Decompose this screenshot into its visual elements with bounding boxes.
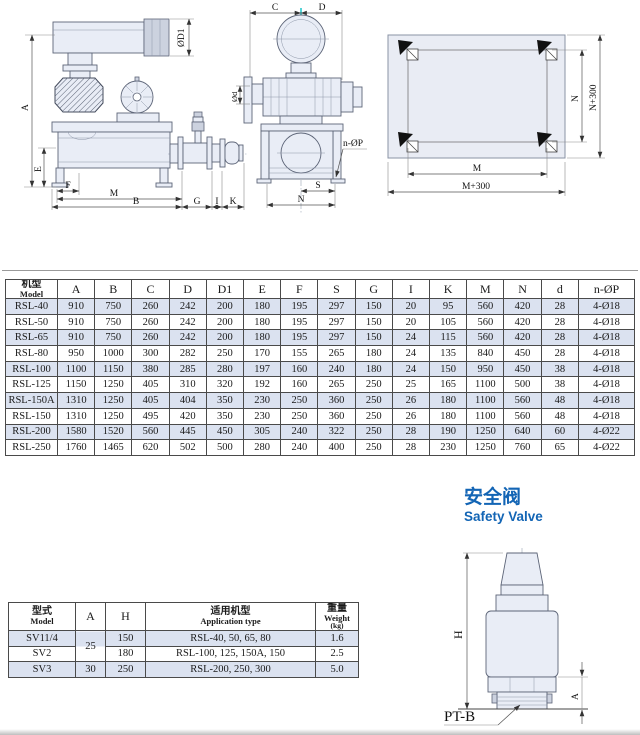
value-cell: 350 [206,393,243,409]
model-cell: RSL-40 [6,299,58,315]
value-cell: 4-Ø22 [579,440,635,456]
table-row: RSL-659107502602422001801952971502411556… [6,330,635,346]
value-cell: 500 [206,440,243,456]
value-cell: 450 [504,346,541,362]
value-cell: 1520 [95,424,132,440]
value-cell: 297 [318,314,355,330]
value-cell: 200 [206,299,243,315]
value-cell: 38 [541,361,578,377]
value-cell: 320 [206,377,243,393]
value-cell: 420 [504,330,541,346]
model-cell: RSL-150A [6,393,58,409]
value-cell: 28 [392,440,429,456]
value-cell: 1100 [467,408,504,424]
value-cell: 155 [281,346,318,362]
value-cell: 1150 [95,361,132,377]
model-cell: RSL-200 [6,424,58,440]
value-cell: 445 [169,424,206,440]
dim-label-D: D [319,3,326,13]
pipe-safety-valve [192,122,204,131]
dim-label-I: I [215,197,218,207]
value-cell: 4-Ø18 [579,377,635,393]
value-cell: 95 [430,299,467,315]
column-header: 重量Weight(kg) [316,603,359,631]
model-cell: RSL-80 [6,346,58,362]
value-cell: 150 [430,361,467,377]
table-row: RSL-809501000300282250170155265180241358… [6,346,635,362]
value-cell: 250 [206,346,243,362]
table-row: RSL-250176014656205025002802404002502823… [6,440,635,456]
value-cell: 24 [392,330,429,346]
value-cell: 26 [392,408,429,424]
value-cell: 322 [318,424,355,440]
value-cell: 242 [169,314,206,330]
safety-valve-title-zh: 安全阀 [464,488,543,507]
dim-label-S: S [315,181,320,191]
dim-label-D1: ØD1 [177,28,187,47]
value-cell: 265 [318,377,355,393]
model-cell: SV2 [9,646,76,662]
value-cell: 260 [132,299,169,315]
valve-cap [501,553,543,585]
value-cell: 180 [430,408,467,424]
table-row: RSL-150A13101250405404350230250360250261… [6,393,635,409]
value-cell: 1760 [58,440,95,456]
dim-label-E: E [34,166,44,172]
valve-thread [497,692,547,709]
value-cell: 1000 [95,346,132,362]
dim-label-G: G [194,197,201,207]
dim-label-plan-N: N [571,95,581,102]
dim-label-valve-H: H [451,630,465,639]
value-cell: 28 [541,314,578,330]
value-cell: 240 [318,361,355,377]
value-cell: 297 [318,330,355,346]
value-cell: 150 [106,631,146,647]
value-cell: 1150 [58,377,95,393]
column-header: A [76,603,106,631]
discharge-pipe [183,143,207,163]
value-cell: 195 [281,314,318,330]
application-cell: RSL-100, 125, 150A, 150 [146,646,316,662]
value-cell: 750 [95,330,132,346]
table-header-row: 型式ModelAH适用机型Application type重量Weight(kg… [9,603,359,631]
value-cell: 250 [355,408,392,424]
weight-cell: 2.5 [316,646,359,662]
value-cell: 1250 [467,440,504,456]
value-cell: 305 [244,424,281,440]
value-cell: 28 [392,424,429,440]
dim-label-d: Ød [232,91,239,102]
model-cell: SV3 [9,662,76,678]
value-cell: 180 [430,393,467,409]
value-cell: 1250 [95,393,132,409]
value-cell: 260 [132,314,169,330]
model-cell: RSL-150 [6,408,58,424]
value-cell: 405 [132,377,169,393]
weight-cell: 5.0 [316,662,359,678]
model-cell: RSL-100 [6,361,58,377]
value-cell: 195 [281,299,318,315]
application-cell: RSL-40, 50, 65, 80 [146,631,316,647]
valve-body [486,611,558,677]
value-cell: 60 [541,424,578,440]
value-cell: 1310 [58,393,95,409]
value-cell: 180 [244,299,281,315]
silencer-body [53,22,144,53]
value-cell: 640 [504,424,541,440]
value-cell: 250 [355,393,392,409]
value-cell: 26 [392,393,429,409]
column-header: 型式Model [9,603,76,631]
value-cell: 450 [206,424,243,440]
column-header: B [95,280,132,299]
value-cell: 180 [106,646,146,662]
value-cell: 1250 [95,408,132,424]
model-cell: RSL-125 [6,377,58,393]
value-cell: 165 [430,377,467,393]
dim-label-N: N [298,195,305,205]
dimensions-table: 机型ModelABCDD1EFSGIKMNdn-ØP RSL-409107502… [5,279,635,456]
dim-label-B: B [133,197,139,207]
value-cell: 192 [244,377,281,393]
table-row: RSL-409107502602422001801952971502095560… [6,299,635,315]
column-header: S [318,280,355,299]
value-cell: 950 [467,361,504,377]
value-cell: 760 [504,440,541,456]
value-cell: 230 [244,408,281,424]
value-cell: 190 [430,424,467,440]
value-cell: 400 [318,440,355,456]
safety-valve-title-en: Safety Valve [464,510,543,524]
value-cell: 150 [355,330,392,346]
column-header: 机型Model [6,280,58,299]
column-header: H [106,603,146,631]
value-cell: 404 [169,393,206,409]
section-divider [2,270,638,271]
dim-label-M: M [110,189,119,199]
value-cell: 560 [504,393,541,409]
value-cell: 950 [58,346,95,362]
value-cell: 28 [541,346,578,362]
column-header: C [132,280,169,299]
dim-label-plan-M300: M+300 [462,182,490,192]
value-cell: 265 [318,346,355,362]
value-cell: 750 [95,314,132,330]
value-cell: 4-Ø18 [579,314,635,330]
table-row: RSL-509107502602422001801952971502010556… [6,314,635,330]
silencer-end-cap [144,19,169,56]
dim-label-plan-M: M [473,164,482,174]
value-cell: 4-Ø22 [579,424,635,440]
table-row: RSL-200158015205604454503052403222502819… [6,424,635,440]
value-cell: 910 [58,314,95,330]
value-cell: 28 [541,330,578,346]
value-cell: 840 [467,346,504,362]
value-cell: 250 [355,440,392,456]
value-cell: 48 [541,393,578,409]
value-cell: 380 [132,361,169,377]
value-cell: 750 [95,299,132,315]
dim-label-C: C [272,3,278,13]
value-cell: 135 [430,346,467,362]
catalog-page: ØD1 [0,0,640,735]
column-header: G [355,280,392,299]
model-cell: RSL-50 [6,314,58,330]
base-plate [52,122,172,132]
value-cell: 260 [132,330,169,346]
value-cell: 240 [281,424,318,440]
value-cell: 297 [318,299,355,315]
value-cell: 160 [281,361,318,377]
value-cell: 240 [281,440,318,456]
value-cell: 560 [504,408,541,424]
value-cell: 230 [430,440,467,456]
table-row: RSL-100110011503802852801971602401802415… [6,361,635,377]
value-cell: 282 [169,346,206,362]
blower-side-view-drawing: ØD1 [10,5,250,220]
value-cell: 4-Ø18 [579,408,635,424]
model-cell: SV11/4 [9,631,76,647]
column-header: M [467,280,504,299]
model-cell: RSL-65 [6,330,58,346]
value-cell: 300 [132,346,169,362]
value-cell: 1310 [58,408,95,424]
value-cell: 560 [467,330,504,346]
column-header: F [281,280,318,299]
dim-label-PTB: PT-B [444,709,475,725]
value-cell: 200 [206,330,243,346]
value-cell: 1250 [95,377,132,393]
value-cell: 450 [504,361,541,377]
value-cell: 48 [541,408,578,424]
value-cell: 620 [132,440,169,456]
safety-valve-table: 型式ModelAH适用机型Application type重量Weight(kg… [8,602,359,678]
receiver-tank [58,132,170,168]
value-cell: 250 [106,662,146,678]
value-cell: 4-Ø18 [579,361,635,377]
value-cell: 250 [281,393,318,409]
value-cell: 560 [467,314,504,330]
value-cell: 195 [281,330,318,346]
page-bottom-shadow [0,729,640,735]
value-cell: 4-Ø18 [579,330,635,346]
value-cell: 115 [430,330,467,346]
value-cell: 420 [504,314,541,330]
column-header: D1 [206,280,243,299]
value-cell: 360 [318,408,355,424]
table-row: RSL-125115012504053103201921602652502516… [6,377,635,393]
foundation-plan-drawing: N N+300 M M+300 [380,22,610,202]
value-cell: 560 [467,299,504,315]
value-cell: 350 [206,408,243,424]
blower-front-view-drawing: C D Ød [232,2,378,228]
value-cell: 180 [355,346,392,362]
column-header: D [169,280,206,299]
value-cell: 420 [169,408,206,424]
table-row: RSL-150131012504954203502302503602502618… [6,408,635,424]
column-header: d [541,280,578,299]
value-cell: 24 [392,361,429,377]
value-cell: 150 [355,299,392,315]
value-cell: 1580 [58,424,95,440]
column-header: n-ØP [579,280,635,299]
column-header: 适用机型Application type [146,603,316,631]
value-cell: 910 [58,299,95,315]
value-cell: 30 [76,662,106,678]
value-cell: 250 [355,424,392,440]
value-cell: 560 [132,424,169,440]
value-cell: 170 [244,346,281,362]
column-header: E [244,280,281,299]
column-header: N [504,280,541,299]
table-header-row: 机型ModelABCDD1EFSGIKMNdn-ØP [6,280,635,299]
value-cell: 24 [392,346,429,362]
value-cell: 495 [132,408,169,424]
value-cell: 38 [541,377,578,393]
value-cell: 285 [169,361,206,377]
dim-label-plan-N300: N+300 [589,84,599,111]
value-cell: 280 [206,361,243,377]
drive-shaft [252,84,263,104]
weight-cell: 1.6 [316,631,359,647]
value-cell: 1100 [467,393,504,409]
valve-hex-nut [488,677,556,692]
table-row: SV2180RSL-100, 125, 150A, 1502.5 [9,646,359,662]
safety-valve-title: 安全阀 Safety Valve [464,488,543,524]
value-cell: 4-Ø18 [579,393,635,409]
value-cell: 180 [244,314,281,330]
value-cell: 180 [244,330,281,346]
value-cell: 180 [355,361,392,377]
value-cell: 420 [504,299,541,315]
value-cell: 1465 [95,440,132,456]
value-cell: 1100 [58,361,95,377]
dim-label-F: F [65,181,70,191]
value-cell: 160 [281,377,318,393]
value-cell: 28 [541,299,578,315]
value-cell: 360 [318,393,355,409]
value-cell: 150 [355,314,392,330]
column-header: I [392,280,429,299]
value-cell: 4-Ø18 [579,346,635,362]
value-cell: 310 [169,377,206,393]
table-row: SV11/425150RSL-40, 50, 65, 801.6 [9,631,359,647]
value-cell: 25 [392,377,429,393]
value-cell: 502 [169,440,206,456]
dim-label-valve-A: A [571,693,581,700]
value-cell: 197 [244,361,281,377]
value-cell: 242 [169,330,206,346]
dim-label-A: A [21,104,31,111]
value-cell: 910 [58,330,95,346]
value-cell: 65 [541,440,578,456]
value-cell: 200 [206,314,243,330]
value-cell: 242 [169,299,206,315]
safety-valve-drawing: H A PT-B [420,540,620,730]
dim-label-nP: n-ØP [343,139,363,149]
value-cell: 1100 [467,377,504,393]
value-cell: 405 [132,393,169,409]
application-cell: RSL-200, 250, 300 [146,662,316,678]
value-cell: 280 [244,440,281,456]
value-cell: 4-Ø18 [579,299,635,315]
value-cell: 20 [392,299,429,315]
table-row: SV330250RSL-200, 250, 3005.0 [9,662,359,678]
value-cell: 500 [504,377,541,393]
value-cell: 1250 [467,424,504,440]
value-cell: 250 [355,377,392,393]
column-header: A [58,280,95,299]
value-cell: 250 [281,408,318,424]
value-cell: 230 [244,393,281,409]
column-header: K [430,280,467,299]
value-cell: 25 [76,631,106,662]
model-cell: RSL-250 [6,440,58,456]
value-cell: 20 [392,314,429,330]
value-cell: 105 [430,314,467,330]
